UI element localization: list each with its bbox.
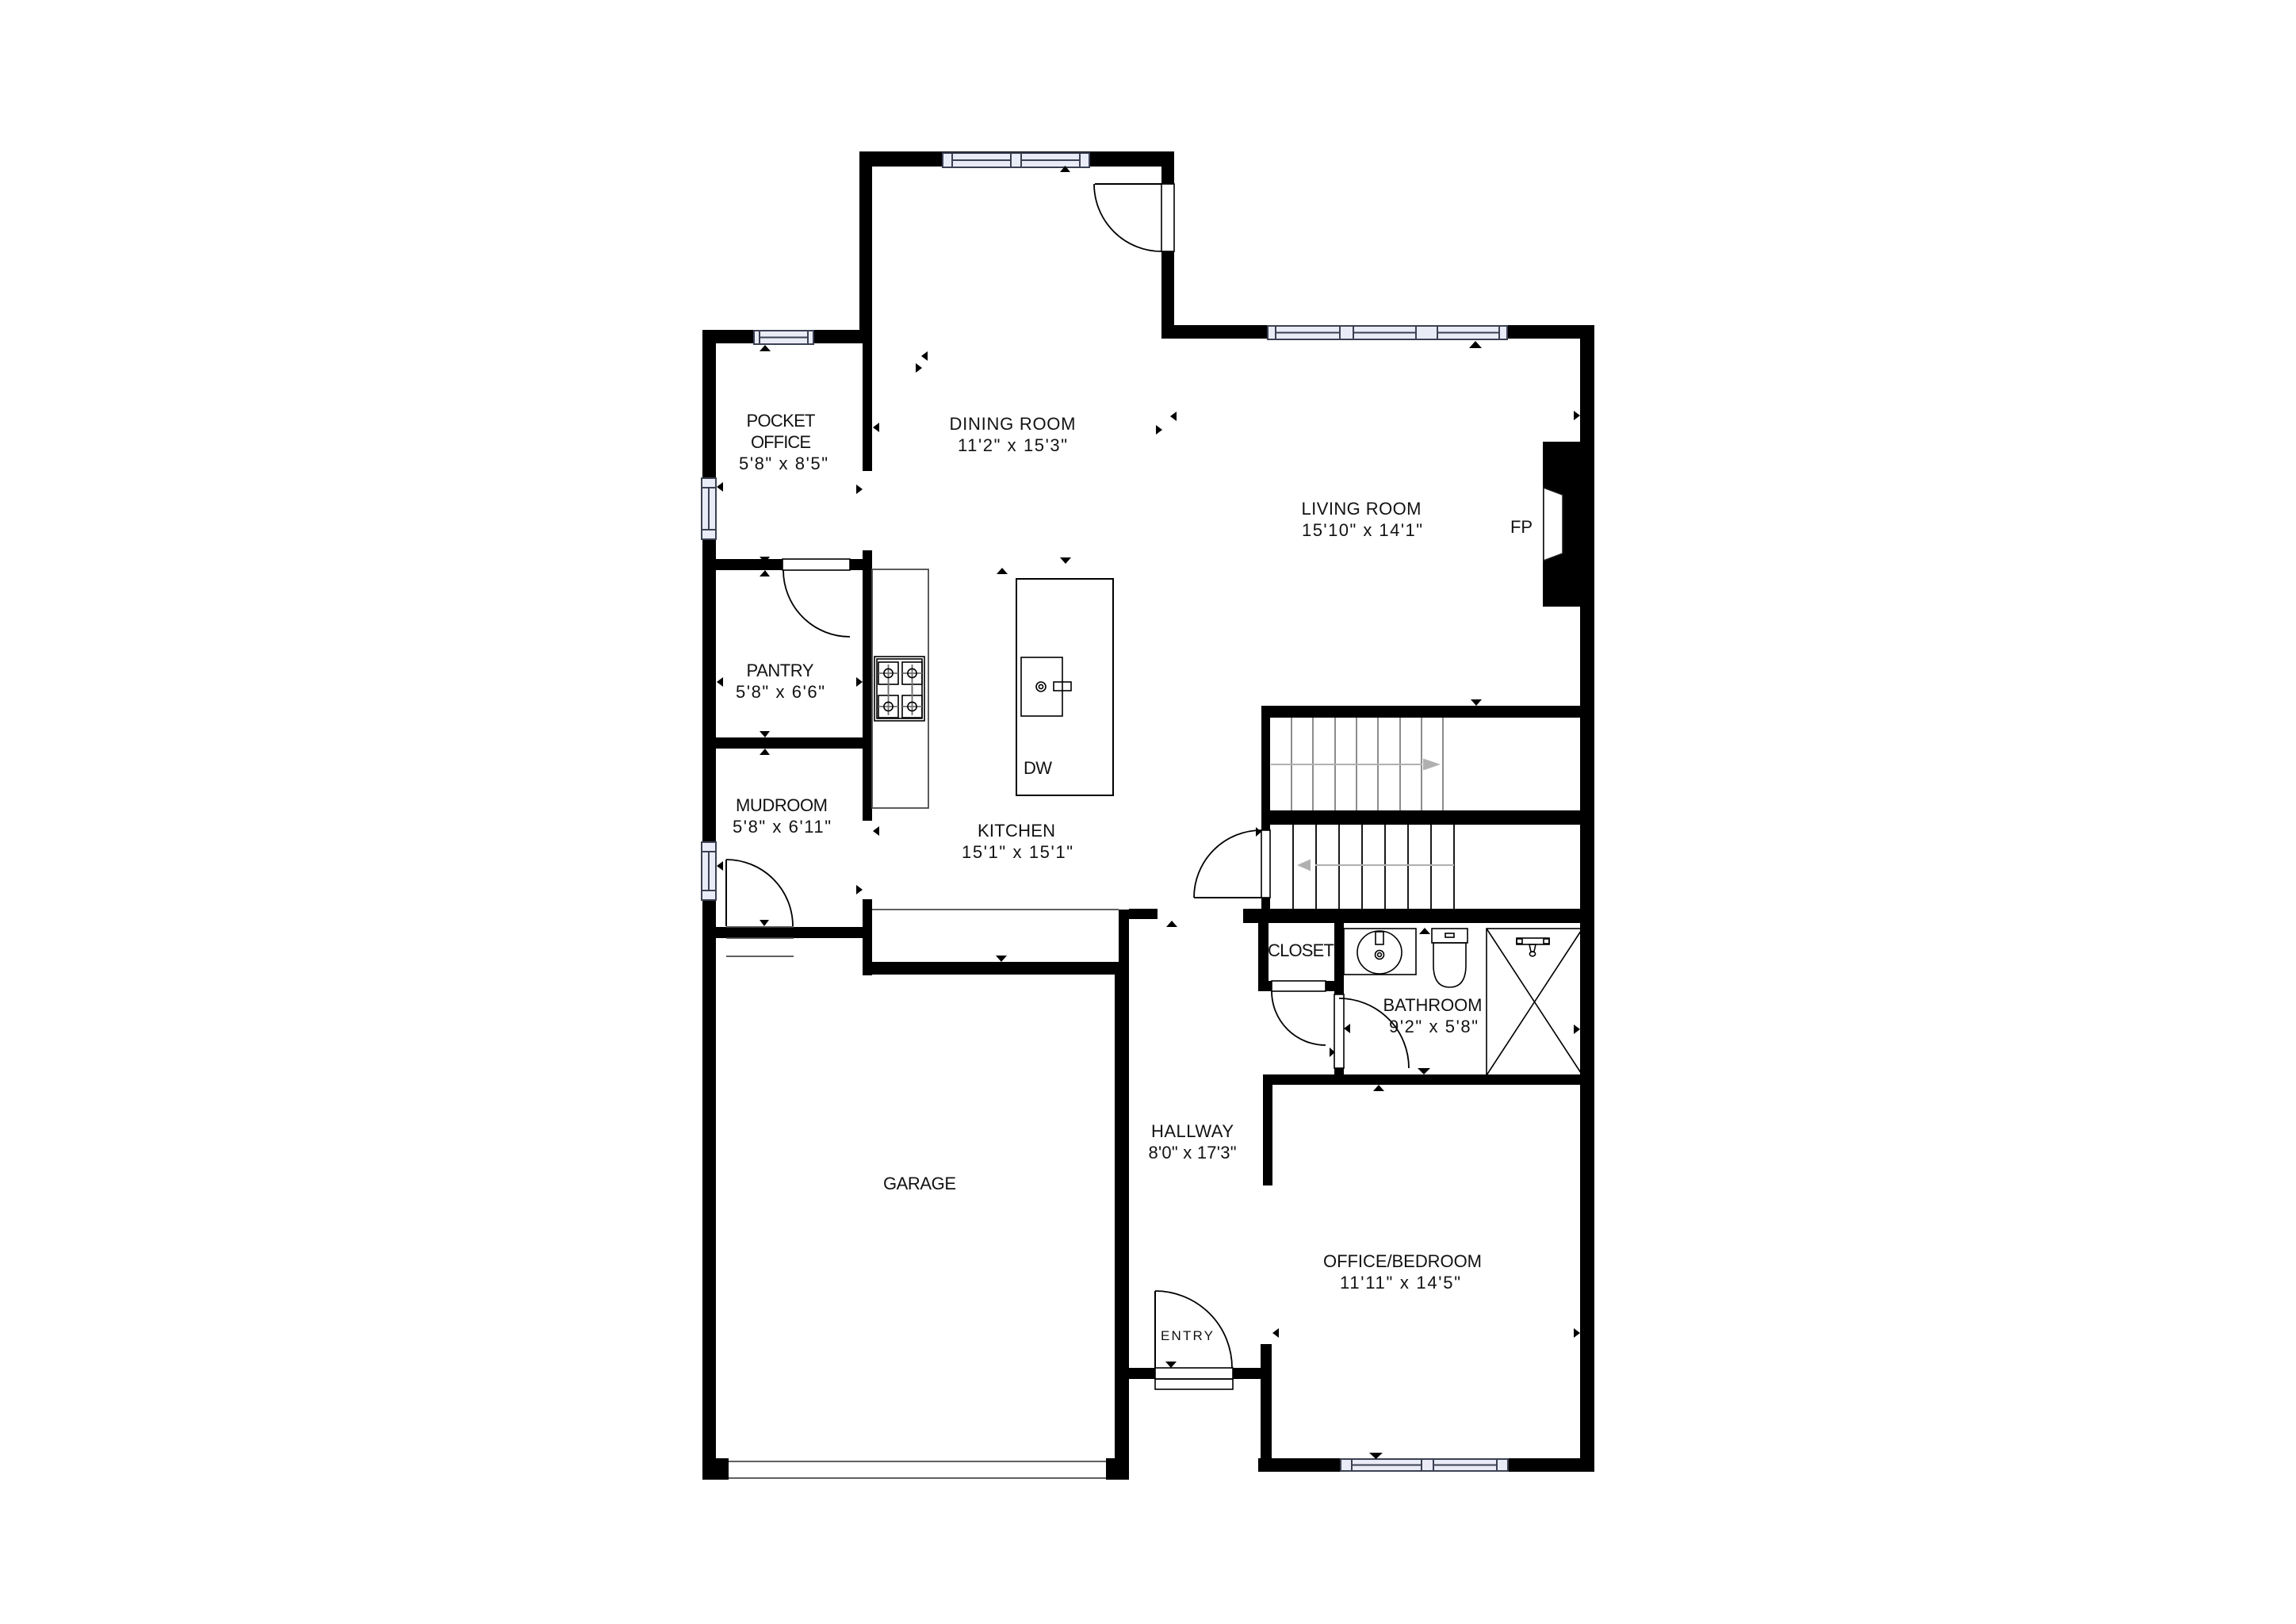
svg-text:POCKET: POCKET [747, 411, 816, 431]
svg-text:CLOSET: CLOSET [1268, 940, 1334, 960]
svg-text:5'8" x 6'6": 5'8" x 6'6" [736, 682, 825, 702]
svg-text:MUDROOM: MUDROOM [736, 795, 828, 815]
svg-text:11'2" x 15'3": 11'2" x 15'3" [958, 435, 1067, 455]
svg-text:DW: DW [1024, 758, 1052, 778]
svg-text:LIVING ROOM: LIVING ROOM [1302, 499, 1422, 519]
svg-text:OFFICE/BEDROOM: OFFICE/BEDROOM [1323, 1251, 1482, 1271]
svg-text:5'8" x 8'5": 5'8" x 8'5" [739, 454, 828, 473]
svg-text:FP: FP [1510, 517, 1533, 537]
svg-text:OFFICE: OFFICE [751, 432, 811, 452]
svg-text:BATHROOM: BATHROOM [1383, 995, 1483, 1015]
svg-text:KITCHEN: KITCHEN [978, 821, 1055, 841]
svg-text:HALLWAY: HALLWAY [1151, 1121, 1234, 1141]
svg-text:PANTRY: PANTRY [747, 661, 814, 680]
svg-text:5'8" x 6'11": 5'8" x 6'11" [733, 817, 831, 837]
svg-text:9'2" x 5'8": 9'2" x 5'8" [1389, 1017, 1478, 1036]
svg-text:ENTRY: ENTRY [1161, 1328, 1213, 1343]
svg-text:8'0" x 17'3": 8'0" x 17'3" [1149, 1143, 1237, 1162]
svg-text:GARAGE: GARAGE [883, 1174, 956, 1193]
svg-text:15'1" x 15'1": 15'1" x 15'1" [962, 842, 1073, 862]
svg-text:DINING ROOM: DINING ROOM [950, 414, 1076, 434]
